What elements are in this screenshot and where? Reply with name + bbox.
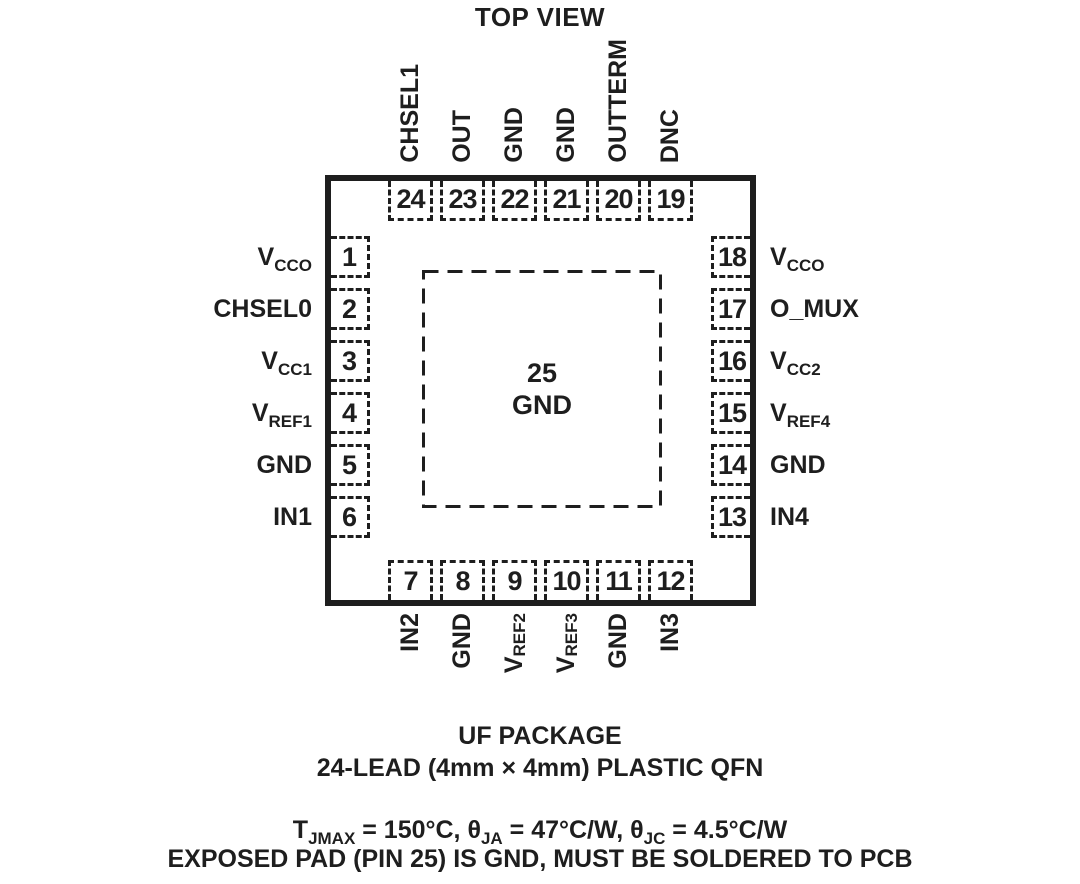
pin-22-label: GND xyxy=(501,107,527,163)
package-description: 24-LEAD (4mm × 4mm) PLASTIC QFN xyxy=(0,754,1080,782)
pin-3-label: VCC1 xyxy=(261,347,312,375)
pin-5-label: GND xyxy=(256,451,312,479)
pin-12-box: 12 xyxy=(648,560,693,600)
pin-2-label: CHSEL0 xyxy=(213,295,312,323)
pin-4-box: 4 xyxy=(331,392,370,434)
pin-6-box: 6 xyxy=(331,496,370,538)
pin-23-box: 23 xyxy=(440,181,485,221)
pin-1-label: VCCO xyxy=(258,243,312,271)
thermal-note: TJMAX = 150°C, θJA = 47°C/W, θJC = 4.5°C… xyxy=(0,816,1080,844)
pin-11-label: GND xyxy=(605,613,631,669)
pin-1-box: 1 xyxy=(331,236,370,278)
pin-24-box: 24 xyxy=(388,181,433,221)
exposed-pad-note: EXPOSED PAD (PIN 25) IS GND, MUST BE SOL… xyxy=(0,845,1080,873)
exposed-pad-number: 25 xyxy=(527,357,557,389)
pin-20-label-cell: OUTTERM xyxy=(592,13,644,163)
pin-8-label: GND xyxy=(449,613,475,669)
package-name: UF PACKAGE xyxy=(0,722,1080,750)
pin-19-box: 19 xyxy=(648,181,693,221)
pin-6-label: IN1 xyxy=(273,503,312,531)
pin-15-label: VREF4 xyxy=(770,399,830,427)
pin-2-box: 2 xyxy=(331,288,370,330)
pin-5-box: 5 xyxy=(331,444,370,486)
pin-11-box: 11 xyxy=(596,560,641,600)
pinout-figure: TOP VIEW CHSEL1OUTGNDGNDOUTTERMDNC 24232… xyxy=(0,0,1080,884)
pin-23-label-cell: OUT xyxy=(436,13,488,163)
exposed-pad-text: 25 GND xyxy=(422,270,662,508)
top-pin-labels: CHSEL1OUTGNDGNDOUTTERMDNC xyxy=(384,13,696,163)
pin-13-box: 13 xyxy=(711,496,750,538)
pin-24-label-cell: CHSEL1 xyxy=(384,13,436,163)
pin-9-label: VREF2 xyxy=(501,613,527,673)
pin-12-label: IN3 xyxy=(657,613,683,652)
pin-18-label: VCCO xyxy=(770,243,824,271)
pin-20-box: 20 xyxy=(596,181,641,221)
pin-9-box: 9 xyxy=(492,560,537,600)
pin-20-label: OUTTERM xyxy=(605,39,631,163)
pin-18-box: 18 xyxy=(711,236,750,278)
exposed-pad: 25 GND xyxy=(422,270,662,508)
pin-21-box: 21 xyxy=(544,181,589,221)
pin-19-label-cell: DNC xyxy=(644,13,696,163)
pin-24-label: CHSEL1 xyxy=(397,64,423,163)
pin-13-label: IN4 xyxy=(770,503,809,531)
exposed-pad-label: GND xyxy=(512,389,572,421)
pin-10-label: VREF3 xyxy=(553,613,579,673)
pin-19-label: DNC xyxy=(657,109,683,163)
pin-4-label: VREF1 xyxy=(252,399,312,427)
pin-21-label-cell: GND xyxy=(540,13,592,163)
pin-16-box: 16 xyxy=(711,340,750,382)
pin-3-box: 3 xyxy=(331,340,370,382)
pin-16-label: VCC2 xyxy=(770,347,821,375)
pin-22-box: 22 xyxy=(492,181,537,221)
pin-17-box: 17 xyxy=(711,288,750,330)
pin-7-label: IN2 xyxy=(397,613,423,652)
pin-14-label: GND xyxy=(770,451,826,479)
pin-23-label: OUT xyxy=(449,110,475,163)
pin-7-box: 7 xyxy=(388,560,433,600)
pin-17-label: O_MUX xyxy=(770,295,859,323)
pin-21-label: GND xyxy=(553,107,579,163)
pin-10-box: 10 xyxy=(544,560,589,600)
pin-8-box: 8 xyxy=(440,560,485,600)
pin-14-box: 14 xyxy=(711,444,750,486)
pin-22-label-cell: GND xyxy=(488,13,540,163)
pin-15-box: 15 xyxy=(711,392,750,434)
